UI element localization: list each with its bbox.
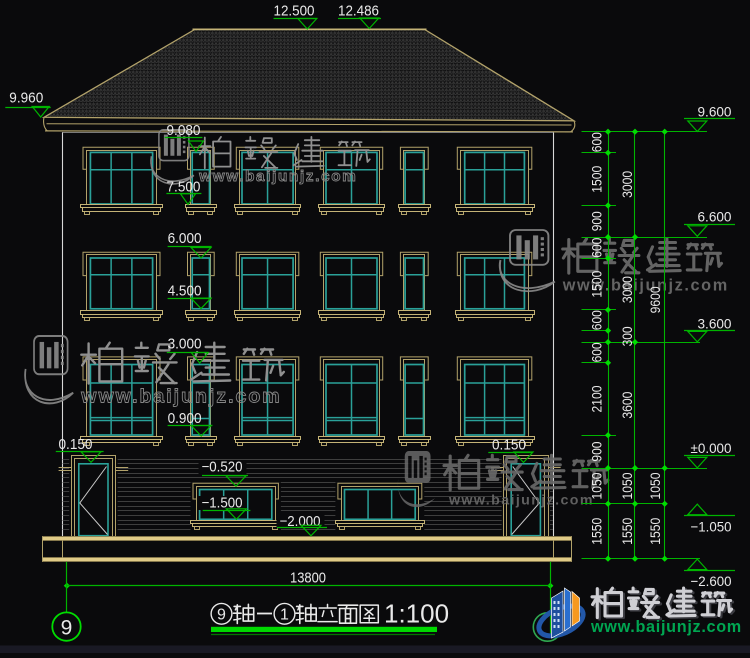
- svg-text:www.baijunjz.com: www.baijunjz.com: [80, 386, 281, 408]
- svg-text:±0.000: ±0.000: [691, 441, 732, 457]
- svg-text:3000: 3000: [619, 276, 635, 303]
- svg-text:9600: 9600: [647, 286, 663, 313]
- svg-text:1050: 1050: [589, 472, 605, 499]
- svg-text:1550: 1550: [619, 518, 635, 545]
- svg-text:1:100: 1:100: [384, 599, 449, 629]
- svg-text:9.960: 9.960: [9, 91, 43, 107]
- svg-text:3600: 3600: [619, 391, 635, 418]
- svg-text:600: 600: [589, 342, 605, 362]
- svg-text:3000: 3000: [619, 171, 635, 198]
- svg-text:www.baijunjz.com: www.baijunjz.com: [590, 618, 742, 636]
- svg-text:2100: 2100: [589, 385, 605, 412]
- svg-text:900: 900: [589, 211, 605, 231]
- svg-text:1500: 1500: [589, 166, 605, 193]
- svg-text:1500: 1500: [589, 270, 605, 297]
- svg-text:9: 9: [217, 607, 226, 624]
- svg-text:4.500: 4.500: [168, 283, 202, 299]
- svg-text:www.baijunjz.com: www.baijunjz.com: [562, 277, 729, 295]
- svg-text:600: 600: [589, 132, 605, 152]
- svg-text:9.080: 9.080: [167, 123, 201, 139]
- svg-text:600: 600: [589, 310, 605, 330]
- svg-text:600: 600: [589, 238, 605, 258]
- svg-text:6.000: 6.000: [168, 231, 202, 247]
- svg-text:−1.050: −1.050: [691, 520, 732, 536]
- svg-text:900: 900: [589, 441, 605, 461]
- svg-text:1050: 1050: [619, 472, 635, 499]
- svg-text:9: 9: [61, 617, 73, 640]
- svg-text:www.baijunjz.com: www.baijunjz.com: [448, 493, 594, 509]
- svg-text:1550: 1550: [647, 518, 663, 545]
- svg-text:−0.520: −0.520: [202, 460, 243, 476]
- svg-text:1550: 1550: [589, 518, 605, 545]
- svg-text:300: 300: [619, 326, 635, 346]
- svg-text:1: 1: [280, 607, 289, 624]
- svg-text:0.150: 0.150: [59, 437, 93, 453]
- svg-text:−2.600: −2.600: [691, 574, 732, 590]
- svg-text:12.486: 12.486: [338, 4, 379, 20]
- svg-text:www.baijunjz.com: www.baijunjz.com: [198, 168, 357, 185]
- svg-text:1050: 1050: [647, 472, 663, 499]
- svg-text:3.000: 3.000: [168, 337, 202, 353]
- svg-text:13800: 13800: [290, 570, 326, 586]
- svg-text:12.500: 12.500: [274, 4, 315, 20]
- svg-text:6.600: 6.600: [698, 210, 732, 226]
- svg-text:0.150: 0.150: [492, 438, 526, 454]
- svg-text:0.900: 0.900: [168, 411, 202, 427]
